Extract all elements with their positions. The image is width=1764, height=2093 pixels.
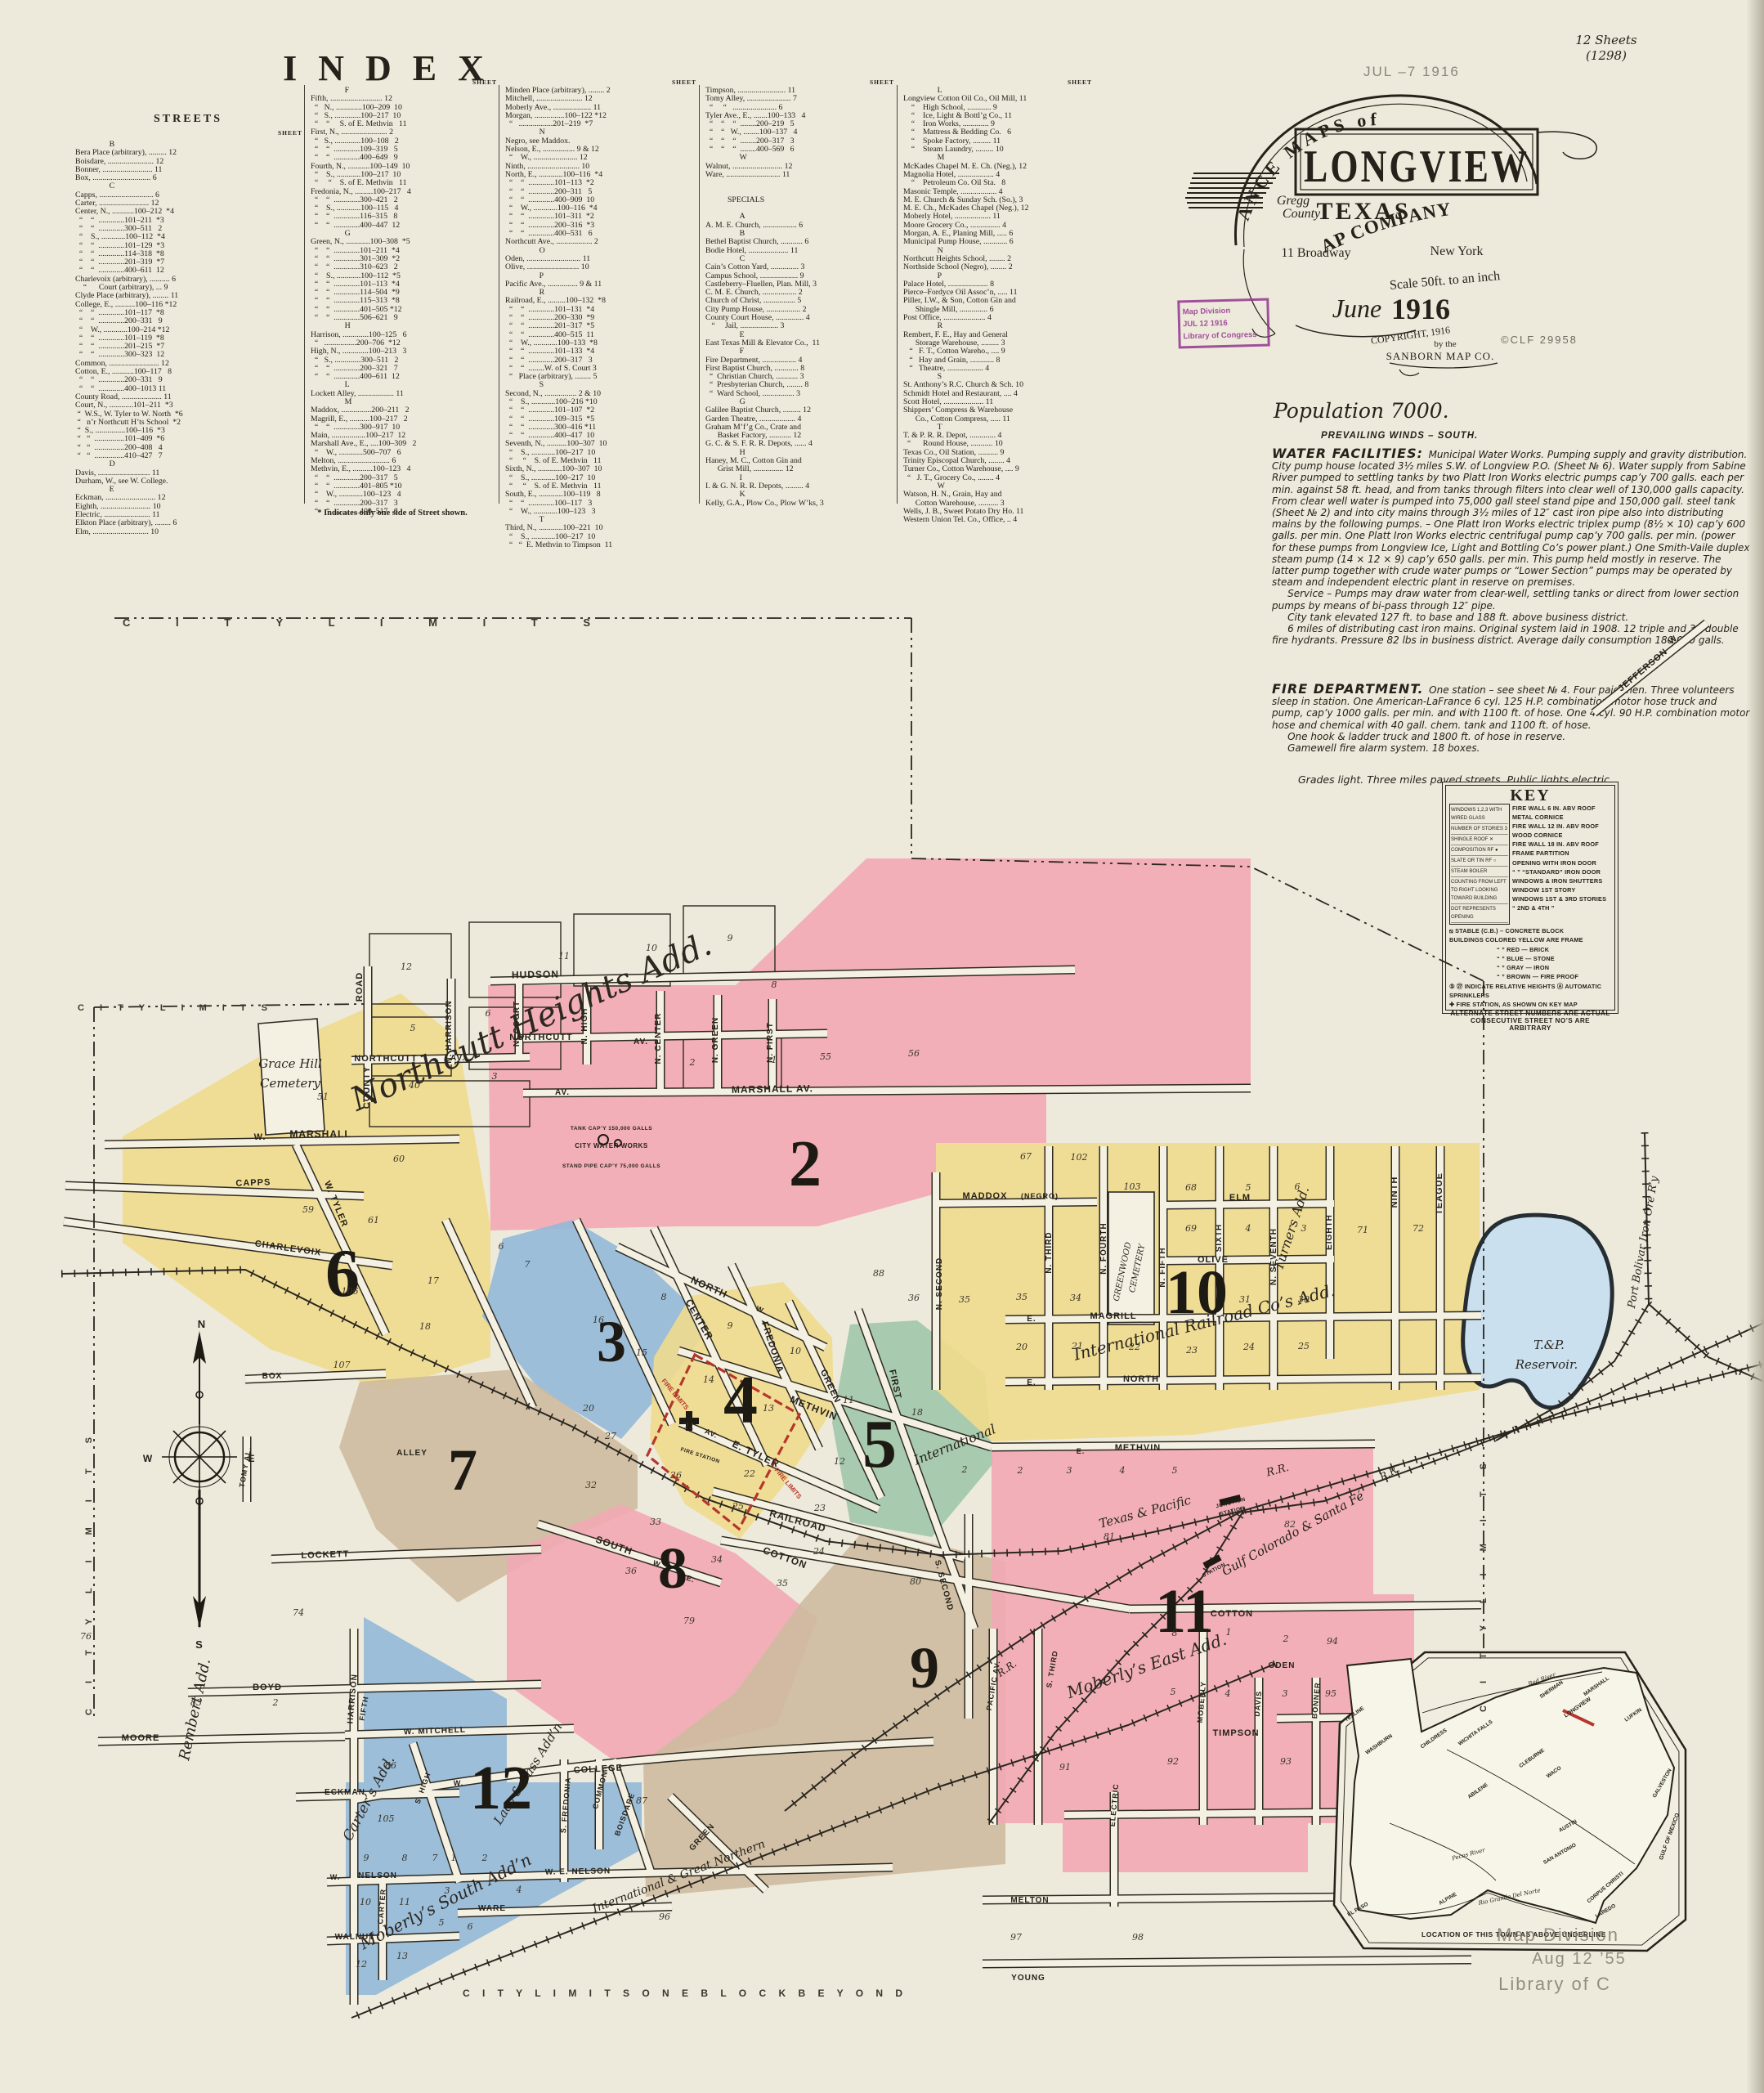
block-number: 11 (399, 1897, 410, 1907)
block-number: 83 (190, 1697, 202, 1708)
block-number: 25 (1297, 1341, 1310, 1351)
block-number: 23 (1185, 1345, 1198, 1356)
block-number: 5 (439, 1917, 445, 1928)
street-label: BOX (262, 1372, 283, 1381)
map-note: STAND PIPE CAP’Y 75,000 GALLS (562, 1163, 660, 1169)
city-limits-label: C I T Y L I M I T S (84, 1426, 94, 1715)
copyright-line: SANBORN MAP CO. (1386, 350, 1495, 362)
block-number: 7 (525, 1259, 531, 1270)
street-label: N (198, 1318, 206, 1330)
street-label: N. CENTER (654, 1013, 663, 1064)
block-number: 36 (625, 1566, 637, 1576)
street-label: N. SECOND (935, 1257, 944, 1311)
street-label: CAPPS (235, 1177, 271, 1188)
scale-note: Scale 50ft. to an inch (1389, 269, 1500, 293)
block-number: 5 (1171, 1687, 1176, 1697)
block-number: 20 (582, 1403, 594, 1414)
street-label: TEAGUE (1435, 1172, 1444, 1215)
street-label: W. (254, 1132, 266, 1142)
block-number: 82 (1284, 1519, 1296, 1530)
street-label: S (195, 1638, 204, 1651)
block-number: 6 (1295, 1181, 1301, 1192)
index-column-rule (304, 85, 305, 504)
block-number: 15 (636, 1347, 647, 1358)
sanborn-map-sheet: { "palette":{"paper":"#edeadb","pink":"#… (0, 0, 1764, 2093)
block-number: 6 (486, 1008, 491, 1019)
block-number: 40 (408, 1080, 420, 1091)
block-number: 1 (772, 1055, 777, 1065)
block-number: 8 (402, 1853, 408, 1863)
map-city-title: LONGVIEW (1304, 141, 1529, 192)
street-label: EIGHTH (1325, 1214, 1334, 1250)
street-label: NORTH (1123, 1374, 1159, 1384)
block-number: 9 (728, 933, 733, 943)
street-label: ALLEY (396, 1449, 428, 1458)
block-number: 33 (650, 1517, 661, 1527)
street-label: HUDSON (512, 968, 559, 980)
block-number: 107 (334, 1360, 351, 1370)
district-number: 8 (658, 1535, 687, 1601)
street-segment (936, 1202, 1097, 1203)
block-number: 3 (1067, 1465, 1072, 1476)
block-number: 2 (961, 1464, 968, 1475)
street-segment (1005, 1378, 1481, 1382)
block-number: 87 (636, 1795, 647, 1806)
street-label: E. (1077, 1447, 1086, 1455)
street-label: WARE (478, 1904, 506, 1913)
district-number: 10 (1166, 1258, 1228, 1327)
block-number: 88 (873, 1268, 884, 1279)
block-number: 2 (1283, 1634, 1289, 1644)
city-limits-label: C I T Y L I M I T S (1479, 1454, 1489, 1712)
district-number: 7 (448, 1437, 477, 1503)
block-number: 3 (1283, 1688, 1288, 1699)
block-number: 14 (703, 1374, 714, 1385)
compass-rose (162, 1331, 237, 1629)
greenwood-cemetery-block (1108, 1192, 1154, 1324)
block-number: 1 (1226, 1627, 1232, 1638)
block-number: 68 (1185, 1182, 1197, 1193)
city-limits-label: C I T Y L I M I T S O N E B L O C K B E … (463, 1988, 907, 1999)
block-number: 4 (1225, 1688, 1231, 1699)
sheet-column-label: SHEET (845, 78, 894, 86)
block-number: 22 (1128, 1342, 1140, 1352)
block-number: 105 (378, 1813, 395, 1824)
street-label: LOCKETT (301, 1549, 349, 1561)
sheet-column-label: SHEET (647, 78, 696, 86)
block-number: 81 (1104, 1531, 1115, 1542)
block-number: 12 (834, 1456, 845, 1467)
district-number: 6 (325, 1235, 360, 1311)
block-number: 72 (1413, 1223, 1424, 1234)
sheet-column-label: SHEET (448, 78, 497, 86)
street-label: COTTON (1211, 1609, 1253, 1619)
block-number: 79 (683, 1616, 695, 1626)
block-number: 103 (1124, 1181, 1141, 1192)
street-label: METHVIN (1115, 1443, 1162, 1453)
block-number: 26 (669, 1470, 682, 1481)
district-number: 5 (862, 1406, 897, 1482)
block-number: 17 (428, 1275, 439, 1286)
block-number: 36 (908, 1293, 920, 1303)
block-number: 10 (360, 1897, 371, 1907)
block-number: 5 (1172, 1465, 1178, 1476)
street-label: MARSHALL AV. (732, 1082, 813, 1096)
edition-year: 1916 (1391, 293, 1450, 325)
index-column-specials-1: Timpson, ........................ 11 Tom… (705, 87, 892, 508)
block-number: 91 (1059, 1762, 1071, 1773)
street-label: (NEGRO) (1021, 1192, 1059, 1200)
block-number: 67 (1020, 1151, 1032, 1162)
company-address: 11 Broadway (1281, 246, 1350, 260)
company-city: New York (1430, 244, 1484, 258)
map-note: CITY WATER WORKS (575, 1142, 648, 1150)
block-number: 10 (790, 1346, 801, 1356)
block-number: 6 (468, 1921, 473, 1932)
block-number: 3 (1301, 1223, 1307, 1234)
prevailing-winds-note: PREVAILING WINDS – SOUTH. (1321, 431, 1478, 441)
street-label: E. (1027, 1378, 1036, 1387)
addition-label: Grace Hill (258, 1056, 322, 1071)
block-number: 4 (516, 1885, 522, 1895)
railroad-label: Port Bolivar Iron Ore R’y (1626, 1175, 1661, 1310)
block-number: 2 (272, 1697, 279, 1708)
block-number: 24 (813, 1546, 825, 1557)
sheets-count-note: 12 Sheets (1298) (1557, 33, 1655, 64)
index-streets-header: STREETS (74, 113, 302, 126)
block-number: 98 (1132, 1932, 1144, 1943)
texas-inset-map: LONGVIEW LOCATION OF THIS TOWN AS ABOVE … (1334, 1652, 1686, 1951)
index-column-rule (499, 85, 499, 504)
district-number: 12 (470, 1754, 532, 1822)
map-note: TANK CAP’Y 150,000 GALLS (571, 1126, 652, 1132)
street-label: ROAD (355, 972, 365, 1002)
block-number: 30 (1298, 1294, 1310, 1305)
index-column-streets-1: B Bera Place (arbitrary), ......... 12 B… (75, 141, 298, 536)
street-segment (992, 1444, 1375, 1447)
block-number: 23 (813, 1503, 826, 1513)
addition-label: T.&P. (1533, 1338, 1565, 1352)
block-number: 2 (1017, 1465, 1023, 1476)
block-number: 59 (302, 1204, 314, 1215)
stamp-text: Map Division (1497, 1925, 1619, 1945)
copyright-line: by the (1434, 339, 1456, 349)
edition-month: June (1332, 294, 1381, 323)
street-label: E (248, 1453, 255, 1464)
street-label: SIXTH (1215, 1224, 1224, 1252)
street-label: N. GREEN (711, 1017, 720, 1063)
district-number: 9 (910, 1635, 939, 1701)
street-label: N. THIRD (1045, 1231, 1054, 1273)
street-label: JEFFERSON (1616, 647, 1669, 693)
street-label: MELTON (1010, 1896, 1049, 1905)
stamp-line: Library of Congress (1183, 329, 1265, 343)
page-edge-shadow (1746, 0, 1764, 2093)
block-number: 95 (1325, 1688, 1336, 1699)
street-label: W. (454, 1779, 464, 1787)
block-number: 92 (1167, 1756, 1179, 1767)
block-number: 94 (1327, 1636, 1338, 1647)
addition-label: Reservoir. (1515, 1357, 1578, 1372)
street-label: AV. (555, 1088, 570, 1097)
street-label: NELSON (358, 1871, 397, 1880)
block-number: 2 (689, 1057, 696, 1068)
street-label: ELM (1229, 1193, 1251, 1203)
street-label: MAGRILL (1090, 1311, 1136, 1321)
block-number: 76 (80, 1631, 92, 1642)
block-number: 60 (393, 1154, 405, 1164)
street-label: MOORE (122, 1733, 160, 1743)
index-column-rule (699, 85, 700, 504)
street-label: MARSHALL (289, 1128, 351, 1140)
sheet-column-label: SHEET (253, 129, 302, 137)
block-number: 9 (728, 1320, 733, 1331)
block-number: 3 (445, 1885, 450, 1896)
block-number: 34 (1070, 1293, 1081, 1303)
block-number: 20 (1015, 1342, 1028, 1352)
block-number: 31 (1239, 1294, 1251, 1305)
block-number: 35 (1016, 1292, 1028, 1302)
water-facilities-title: WATER FACILITIES: (1272, 446, 1429, 461)
block-number: 56 (908, 1048, 920, 1059)
block-number: 5 (1246, 1182, 1251, 1193)
block-number: 55 (820, 1051, 831, 1062)
block-number: 5 (410, 1023, 416, 1033)
block-number: 24 (1242, 1342, 1255, 1352)
block-number: 21 (683, 1421, 695, 1432)
city-limits-label: C I T Y L I M I T S (123, 616, 611, 629)
street-label: N. FOURTH (1099, 1222, 1108, 1274)
block-number: 106 (342, 1286, 359, 1297)
street-segment (1165, 1203, 1334, 1205)
street-label: MADDOX (963, 1191, 1008, 1201)
block-number: 12 (356, 1959, 367, 1970)
district-number: 4 (723, 1362, 758, 1438)
sheet-districts (123, 858, 1480, 1995)
block-number: 61 (368, 1215, 379, 1226)
library-of-congress-stamp: Map Division JUL 12 1916 Library of Cong… (1177, 298, 1270, 349)
block-number: 10 (646, 943, 657, 953)
block-number: 1 (451, 1853, 457, 1863)
street-label: BOYD (253, 1683, 282, 1692)
block-number: 13 (763, 1403, 774, 1414)
index-column-streets-3: Minden Place (arbitrary), ........ 2 Mit… (505, 87, 693, 549)
block-number: 27 (604, 1431, 616, 1441)
stamp-text: Aug 12 ’55 (1532, 1950, 1627, 1968)
block-number: 9 (364, 1853, 369, 1863)
block-number: 11 (558, 951, 570, 961)
block-number: 4 (1119, 1465, 1126, 1476)
street-label: W. E. NELSON (545, 1867, 611, 1876)
block-number: 35 (777, 1578, 788, 1589)
block-number: 6 (499, 1241, 504, 1252)
key-map: LONGVIEW LOCATION OF THIS TOWN AS ABOVE … (0, 515, 1764, 2093)
index-column-rule (897, 85, 898, 504)
index-title: INDEX (239, 47, 549, 89)
block-number: 69 (1185, 1223, 1197, 1234)
block-number: 18 (911, 1407, 923, 1418)
sheets-note-line: 12 Sheets (1557, 33, 1655, 48)
block-number: 74 (293, 1607, 304, 1618)
block-number: 8 (661, 1292, 667, 1302)
street-label: YOUNG (1011, 1974, 1045, 1983)
block-number: 34 (711, 1554, 723, 1565)
block-number: 25 (732, 1501, 744, 1512)
index-column-specials-2: L Longview Cotton Oil Co., Oil Mill, 11 … (903, 87, 1095, 524)
city-limits-label: C I T Y L I M I T S (78, 1003, 274, 1013)
block-number: 97 (1010, 1932, 1022, 1943)
block-number: 4 (1245, 1223, 1251, 1234)
street-label: TIMPSON (1212, 1728, 1259, 1738)
block-number: 86 (385, 1760, 396, 1771)
block-number: 8 (772, 979, 777, 990)
block-number: 71 (1357, 1225, 1368, 1235)
block-number: 93 (1280, 1756, 1292, 1767)
block-number: 80 (910, 1576, 921, 1587)
block-number: 32 (585, 1480, 597, 1490)
district-number: 11 (1155, 1577, 1214, 1646)
block-number: 22 (743, 1468, 755, 1479)
block-number: 8 (1172, 1628, 1178, 1638)
street-label: E. (1027, 1315, 1036, 1324)
sheet-column-label: SHEET (1043, 78, 1092, 86)
stamp-text: Library of C (1498, 1974, 1611, 1994)
population-note: Population 7000. (1274, 399, 1449, 423)
block-number: 13 (396, 1951, 408, 1961)
county-label: County (1283, 207, 1321, 221)
street-label: NINTH (1390, 1176, 1399, 1208)
block-number: 11 (843, 1395, 854, 1405)
street-label: W. (330, 1873, 341, 1881)
block-number: 96 (659, 1911, 670, 1922)
block-number: 3 (492, 1071, 498, 1082)
street-label: ECKMAN (325, 1788, 365, 1797)
street-label: ODEN (1269, 1661, 1296, 1670)
addition-label: Rembert Add. (176, 1657, 214, 1763)
block-number: 102 (1071, 1152, 1088, 1163)
street-label: AV. (634, 1038, 648, 1046)
block-number: 21 (1071, 1341, 1083, 1351)
district-number: 2 (789, 1128, 822, 1200)
index-column-streets-2: F Fifth, .......................... 12 “… (311, 87, 494, 516)
block-number: 16 (593, 1315, 604, 1325)
street-label: W (143, 1453, 153, 1464)
block-number: 2 (481, 1853, 488, 1863)
block-number: 12 (401, 961, 412, 972)
street-segment (983, 1960, 1471, 1964)
block-number: 35 (959, 1294, 970, 1305)
addition-label: Cemetery (260, 1076, 321, 1091)
block-number: 18 (419, 1321, 431, 1332)
block-number: 7 (432, 1853, 438, 1863)
sheets-number: (1298) (1557, 48, 1655, 64)
county-label: Gregg (1277, 194, 1310, 208)
copyright-number: ©CLF 29958 (1501, 334, 1578, 346)
block-number: 51 (317, 1091, 329, 1102)
